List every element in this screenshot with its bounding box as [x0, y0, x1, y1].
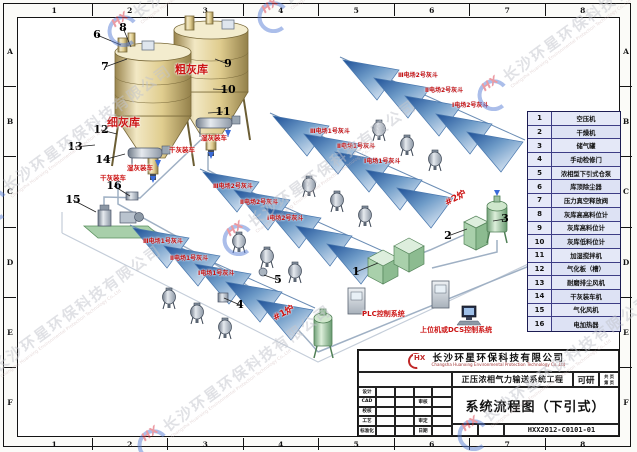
callout-number-14: 14 [95, 153, 110, 166]
hopper-label: Ⅱ电场2号灰斗 [240, 197, 278, 206]
company-name-en: Changsha Huanxing Environmental Protecti… [432, 364, 566, 368]
label-干灰装车: 干灰装车 [100, 172, 126, 182]
silo-pump [261, 247, 274, 268]
legend-item-name: 气化风机 [552, 304, 620, 317]
callout-number-3: 3 [501, 212, 509, 225]
legend-item-name: 灰库低料位计 [552, 235, 620, 248]
signature-grid-row: 设计 [358, 387, 452, 397]
title-block-company-row: HX 长沙环星环保科技有限公司 Changsha Huanxing Enviro… [358, 350, 619, 372]
signature-blank-cell [395, 426, 414, 436]
legend-item-name: 库顶除尘器 [552, 180, 620, 193]
signature-grid-row: CAD审核 [358, 397, 452, 407]
equipment-legend-table: 1空压机2干燥机3储气罐4手动检修门5浓相型下引式仓泵6库顶除尘器7压力真空释放… [527, 111, 621, 332]
hopper-label: Ⅲ电场1号灰斗 [310, 126, 350, 135]
silo-pump [163, 288, 176, 309]
silo-pump [359, 206, 372, 227]
esp-hopper-panel [467, 132, 523, 172]
title-block-blank-cell [358, 372, 452, 387]
legend-item-number: 1 [528, 112, 552, 125]
hopper-label: Ⅱ电场1号灰斗 [170, 253, 208, 262]
legend-item-name: 空压机 [552, 112, 620, 125]
legend-row: 16电加热器 [528, 317, 620, 331]
signature-field-label: CAD [358, 397, 376, 407]
approval-field-label [414, 387, 432, 397]
signature-field-label: 标准化 [358, 426, 376, 436]
callout-number-1: 1 [352, 265, 360, 278]
signature-grid-row: 工艺审定 [358, 416, 452, 426]
legend-row: 3储气罐 [528, 139, 620, 153]
label-上位机或DCS控制系统: 上位机或DCS控制系统 [420, 325, 492, 335]
silo-pump [401, 135, 414, 156]
legend-item-name: 干灰装车机 [552, 290, 620, 303]
legend-row: 1空压机 [528, 112, 620, 126]
legend-row: 12气化板（槽） [528, 263, 620, 277]
signature-field-label: 校核 [358, 407, 376, 417]
hopper-label: Ⅰ电场1号灰斗 [364, 156, 400, 165]
callout-number-9: 9 [224, 57, 232, 70]
legend-item-name: 耐磨排尘风机 [552, 276, 620, 289]
signature-blank-cell [432, 407, 452, 417]
legend-row: 5浓相型下引式仓泵 [528, 167, 620, 181]
stage-mark: 可研 [573, 372, 599, 387]
legend-item-number: 9 [528, 222, 552, 235]
silo-pump [429, 150, 442, 171]
legend-item-number: 16 [528, 317, 552, 331]
label-湿灰装车: 湿灰装车 [127, 162, 153, 172]
hopper-label: Ⅱ电场1号灰斗 [337, 141, 375, 150]
project-name: 正压浓相气力输送系统工程 [452, 372, 573, 387]
legend-item-number: 5 [528, 167, 552, 180]
drawing-title: 系统流程图（下引式） [452, 387, 619, 424]
legend-item-number: 11 [528, 249, 552, 262]
label-湿灰装车: 湿灰装车 [201, 132, 227, 142]
legend-item-number: 15 [528, 304, 552, 317]
legend-item-number: 4 [528, 153, 552, 166]
legend-row: 2干燥机 [528, 126, 620, 140]
label-干灰装车: 干灰装车 [169, 144, 195, 154]
callout-number-8: 8 [119, 21, 127, 34]
pages-no-label: 第 页 [604, 380, 614, 386]
air-compressors [368, 238, 424, 284]
signature-blank-cell [376, 387, 395, 397]
approval-field-label: 审核 [414, 397, 432, 407]
callout-number-7: 7 [101, 60, 109, 73]
silo-pump [191, 303, 204, 324]
silo-pump [233, 232, 246, 253]
callout-number-10: 10 [220, 83, 235, 96]
signature-blank-cell [376, 397, 395, 407]
silo-pump [373, 120, 386, 141]
callout-number-13: 13 [67, 140, 82, 153]
signature-blank-cell [395, 416, 414, 426]
legend-row: 10灰库低料位计 [528, 235, 620, 249]
callout-number-4: 4 [236, 298, 244, 311]
signature-blank-cell [432, 397, 452, 407]
signature-blank-cell [376, 426, 395, 436]
silo-pump [331, 191, 344, 212]
hopper-label: Ⅰ电场2号灰斗 [452, 100, 488, 109]
signature-field-label: 设计 [358, 387, 376, 397]
signature-blank-cell [395, 407, 414, 417]
legend-item-name: 储气罐 [552, 139, 620, 152]
signature-blank-cell [395, 397, 414, 407]
air-dryer [464, 216, 488, 250]
legend-row: 6库顶除尘器 [528, 180, 620, 194]
legend-row: 8灰库高高料位计 [528, 208, 620, 222]
label-PLC控制系统: PLC控制系统 [362, 309, 405, 319]
approval-field-label: 日期 [414, 426, 432, 436]
legend-item-number: 10 [528, 235, 552, 248]
silo-pump [303, 176, 316, 197]
legend-item-number: 3 [528, 139, 552, 152]
hopper-label: Ⅰ电场2号灰斗 [267, 213, 303, 222]
legend-item-number: 14 [528, 290, 552, 303]
signature-blank-cell [432, 416, 452, 426]
legend-row: 14干灰装车机 [528, 290, 620, 304]
legend-item-name: 浓相型下引式仓泵 [552, 167, 620, 180]
legend-row: 13耐磨排尘风机 [528, 276, 620, 290]
title-block: HX 长沙环星环保科技有限公司 Changsha Huanxing Enviro… [357, 349, 620, 437]
hopper-label: Ⅲ电场2号灰斗 [213, 181, 253, 190]
signature-grid-row: 标准化日期 [358, 426, 452, 436]
dcs-computer [457, 306, 481, 325]
legend-item-number: 7 [528, 194, 552, 207]
legend-row: 4手动检修门 [528, 153, 620, 167]
fine-ash-silo [112, 33, 194, 183]
legend-item-number: 6 [528, 180, 552, 193]
hopper-label: Ⅲ电场1号灰斗 [143, 236, 183, 245]
legend-row: 9灰库高料位计 [528, 222, 620, 236]
esp-hopper-panel [397, 188, 453, 228]
legend-item-number: 12 [528, 263, 552, 276]
legend-row: 11加湿搅拌机 [528, 249, 620, 263]
signature-blank-cell [432, 387, 452, 397]
legend-item-name: 灰库高高料位计 [552, 208, 620, 221]
legend-item-name: 压力真空释放阀 [552, 194, 620, 207]
signature-grid-row: 校核 [358, 407, 452, 417]
company-logo-icon: HX [408, 353, 424, 369]
legend-item-number: 13 [528, 276, 552, 289]
callout-number-2: 2 [444, 229, 452, 242]
callout-number-6: 6 [93, 28, 101, 41]
legend-item-name: 手动检修门 [552, 153, 620, 166]
legend-row: 15气化风机 [528, 304, 620, 318]
legend-item-number: 2 [528, 126, 552, 139]
signature-grid: 设计CAD审核校核工艺审定标准化日期 [358, 387, 452, 436]
approval-field-label [414, 407, 432, 417]
approval-field-label: 审定 [414, 416, 432, 426]
callout-number-15: 15 [65, 193, 80, 206]
sheet-count-cell: 共 页 第 页 [599, 372, 619, 387]
signature-blank-cell [395, 387, 414, 397]
legend-item-name: 加湿搅拌机 [552, 249, 620, 262]
legend-row: 7压力真空释放阀 [528, 194, 620, 208]
legend-item-name: 灰库高料位计 [552, 222, 620, 235]
silo-pump [289, 262, 302, 283]
hopper-label: Ⅰ电场1号灰斗 [198, 268, 234, 277]
legend-item-name: 气化板（槽） [552, 263, 620, 276]
callout-number-5: 5 [274, 273, 282, 286]
signature-blank-cell [376, 407, 395, 417]
callout-number-11: 11 [215, 105, 230, 118]
label-细灰库: 细灰库 [107, 114, 140, 130]
legend-item-number: 8 [528, 208, 552, 221]
title-block-small-cell [478, 424, 504, 436]
signature-blank-cell [432, 426, 452, 436]
title-block-small-cell [452, 424, 478, 436]
signature-field-label: 工艺 [358, 416, 376, 426]
drawing-page: 12345678 12345678 ABCDEF ABCDEF [0, 0, 637, 452]
legend-item-name: 电加热器 [552, 317, 620, 331]
hopper-label: Ⅲ电场2号灰斗 [398, 70, 438, 79]
silo-pump [219, 318, 232, 339]
hopper-label: Ⅱ电场2号灰斗 [425, 85, 463, 94]
label-粗灰库: 粗灰库 [175, 61, 208, 77]
drawing-number: HXX2012-C0101-01 [504, 424, 619, 436]
signature-blank-cell [376, 416, 395, 426]
legend-item-name: 干燥机 [552, 126, 620, 139]
